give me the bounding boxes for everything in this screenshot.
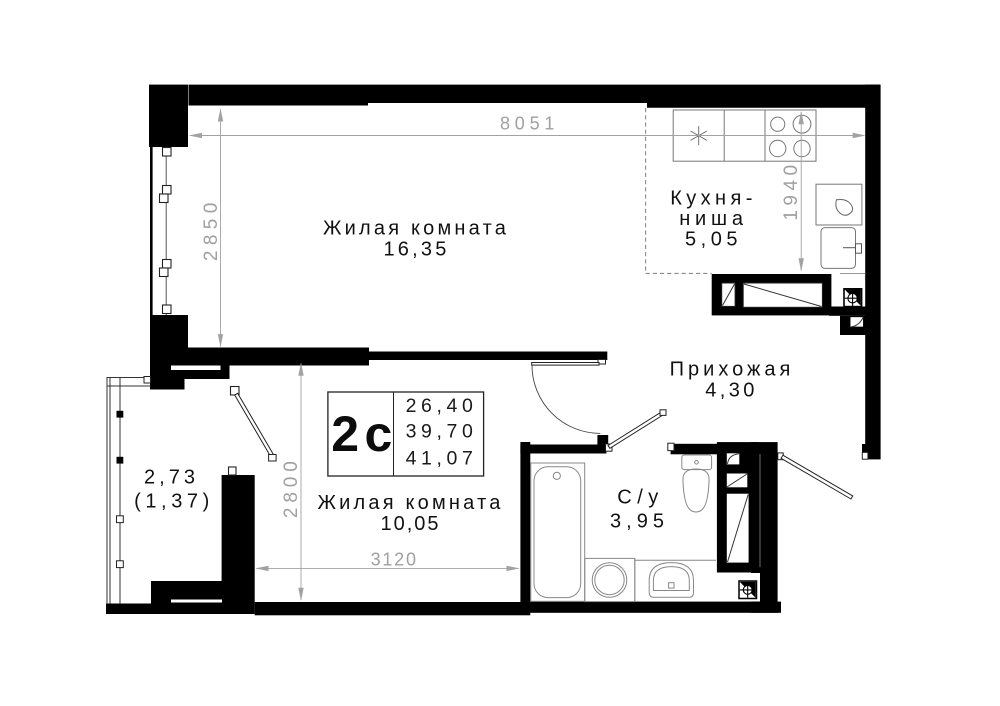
svg-text:5,05: 5,05 <box>685 229 742 251</box>
svg-text:ниша: ниша <box>679 208 748 230</box>
svg-text:С/у: С/у <box>617 487 664 509</box>
svg-text:1940: 1940 <box>781 160 802 220</box>
svg-text:3,95: 3,95 <box>610 511 669 533</box>
svg-text:2800: 2800 <box>281 456 302 518</box>
svg-text:39,70: 39,70 <box>406 421 478 443</box>
svg-text:8051: 8051 <box>500 114 559 134</box>
svg-text:2,73: 2,73 <box>144 467 199 489</box>
svg-text:2с: 2с <box>331 406 398 462</box>
svg-text:41,07: 41,07 <box>406 448 478 470</box>
svg-text:26,40: 26,40 <box>406 395 478 417</box>
svg-text:2850: 2850 <box>201 197 222 261</box>
svg-text:3120: 3120 <box>371 550 418 570</box>
svg-text:4,30: 4,30 <box>705 380 758 402</box>
svg-text:(1,37): (1,37) <box>134 491 214 513</box>
svg-text:Прихожая: Прихожая <box>670 359 795 381</box>
svg-text:Жилая комната: Жилая комната <box>317 492 503 514</box>
svg-text:16,35: 16,35 <box>383 239 449 261</box>
svg-text:Кухня-: Кухня- <box>670 188 757 210</box>
svg-text:Жилая комната: Жилая комната <box>323 218 509 240</box>
svg-text:10,05: 10,05 <box>380 513 440 535</box>
